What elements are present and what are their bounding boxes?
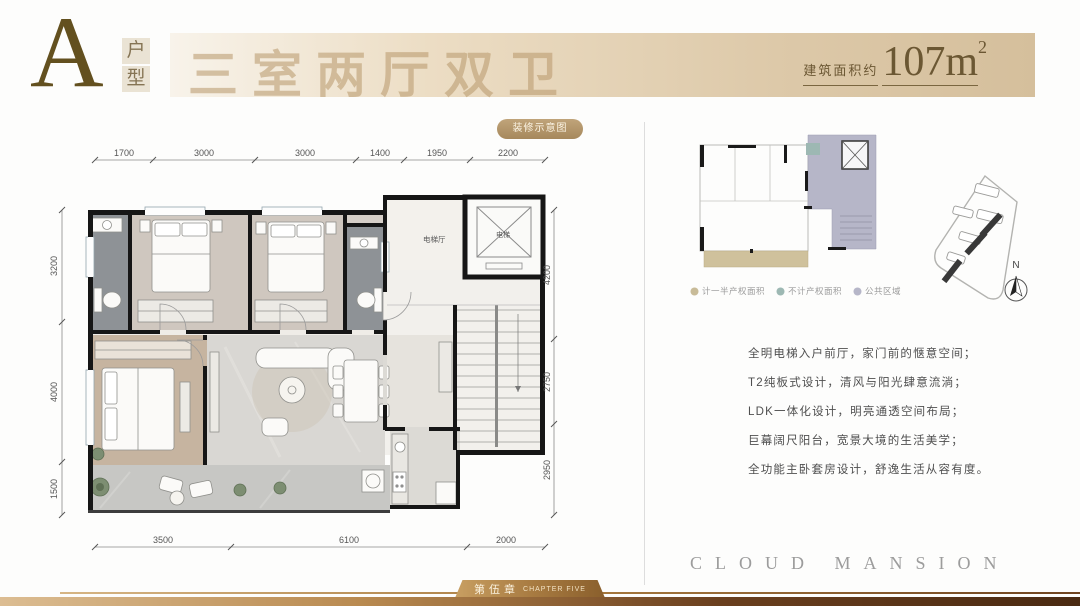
vertical-divider: [644, 122, 645, 585]
legend-item: 计一半产权面积: [690, 285, 765, 297]
page-title: 三室两厅双卫: [188, 35, 572, 107]
feature-line: 全功能主卧套房设计，舒逸生活从容有度。: [748, 456, 1028, 485]
decoration-badge: 装修示意图: [497, 119, 583, 139]
key-plan: [690, 131, 895, 281]
svg-text:2750: 2750: [542, 372, 552, 392]
svg-text:6100: 6100: [339, 535, 359, 545]
svg-text:3500: 3500: [153, 535, 173, 545]
legend-label: 公共区域: [865, 285, 901, 297]
area-label: 建筑面积约: [803, 60, 878, 86]
compass-label: N: [1012, 260, 1019, 271]
feature-line: LDK一体化设计，明亮通透空间布局；: [748, 398, 1028, 427]
svg-text:2000: 2000: [496, 535, 516, 545]
area-value: 107m: [882, 41, 978, 86]
unit-type-label: 户 型: [122, 38, 152, 94]
svg-text:1950: 1950: [427, 148, 447, 158]
elevator-hall-label: 电梯厅: [423, 234, 446, 244]
page: A 户 型 三室两厅双卫 建筑面积约107m2 装修示意图: [0, 0, 1080, 606]
svg-text:2950: 2950: [542, 460, 552, 480]
svg-text:3000: 3000: [295, 148, 315, 158]
svg-text:3200: 3200: [49, 256, 59, 276]
svg-text:4200: 4200: [542, 265, 552, 285]
building-area: 建筑面积约107m2: [803, 41, 987, 86]
bottom-gradient-band: [0, 597, 1080, 606]
chapter-title-cn: 第伍章: [474, 581, 519, 597]
legend-dot-no-property: [776, 287, 785, 296]
header-banner: 三室两厅双卫 建筑面积约107m2: [170, 33, 1035, 97]
brand-name: CLOUD MANSION: [690, 553, 1010, 574]
feature-line: 巨幕阔尺阳台，宽景大境的生活美学；: [748, 427, 1028, 456]
legend-dot-public-area: [853, 287, 862, 296]
svg-text:3000: 3000: [194, 148, 214, 158]
elevator-label: 电梯: [496, 230, 510, 239]
svg-text:2200: 2200: [498, 148, 518, 158]
legend-item: 不计产权面积: [776, 285, 842, 297]
area-exponent: 2: [978, 37, 987, 58]
unit-type-char-1: 户: [122, 38, 150, 64]
chapter-title-en: CHAPTER FIVE: [523, 586, 586, 593]
feature-line: 全明电梯入户前厅，家门前的惬意空间；: [748, 340, 1028, 369]
feature-list: 全明电梯入户前厅，家门前的惬意空间； T2纯板式设计，清风与阳光肆意流淌； LD…: [748, 340, 1028, 485]
svg-text:1400: 1400: [370, 148, 390, 158]
legend-item: 公共区域: [853, 285, 901, 297]
unit-type-char-2: 型: [122, 66, 150, 92]
chapter-ribbon: 第伍章 CHAPTER FIVE: [455, 580, 605, 598]
legend-label: 计一半产权面积: [702, 285, 765, 297]
unit-letter: A: [30, 2, 104, 104]
key-plan-legend: 计一半产权面积 不计产权面积 公共区域: [690, 285, 901, 297]
feature-line: T2纯板式设计，清风与阳光肆意流淌；: [748, 369, 1028, 398]
floor-plan: 电梯厅 电梯 1700 3000 3000: [40, 142, 565, 567]
svg-text:1700: 1700: [114, 148, 134, 158]
key-plan-shapes: [700, 135, 876, 267]
svg-text:4000: 4000: [49, 382, 59, 402]
legend-dot-half-property: [690, 287, 699, 296]
north-compass: N: [998, 258, 1034, 308]
legend-label: 不计产权面积: [788, 285, 842, 297]
svg-text:1500: 1500: [49, 479, 59, 499]
